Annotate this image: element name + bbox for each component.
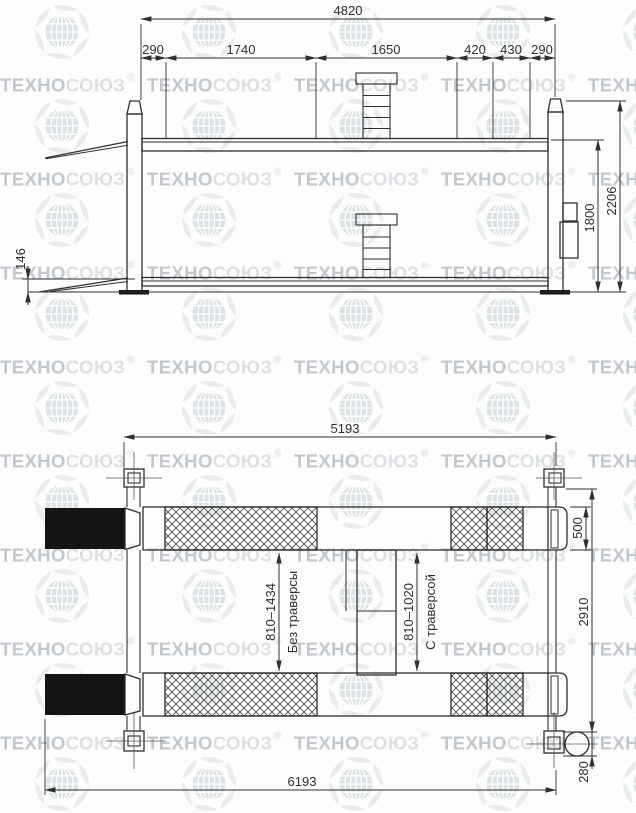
drive-on-ramp [45, 508, 125, 549]
plan-post-rear-right [526, 712, 598, 768]
runway-lowered [39, 278, 548, 293]
approach-ramp-lowered [39, 278, 128, 292]
elevation-view: 4820 290 1740 1650 420 430 290 [13, 3, 626, 305]
plan-post-front-left [106, 452, 162, 500]
plan-dim-overall-length: 6193 [45, 719, 556, 795]
runway-raised [45, 139, 548, 159]
lift-drawing: 4820 290 1740 1650 420 430 290 [0, 0, 636, 813]
dim-label-seg-1: 1740 [227, 42, 256, 57]
plan-dim-runway-width: 500 [570, 507, 591, 550]
traverse-beam [346, 550, 396, 675]
tread-plate [165, 673, 317, 716]
dim-label-overall-length: 6193 [288, 774, 317, 789]
dim-label-range-traverse: 810–1020 [401, 583, 416, 641]
drive-on-ramp [45, 674, 125, 715]
dim-label-seg-3: 420 [464, 42, 486, 57]
dim-label-frame-width: 2910 [576, 598, 591, 627]
plan-post-front-right [536, 452, 582, 500]
ramp-hinge [125, 674, 140, 715]
tread-plate [487, 673, 523, 716]
tread-plate [165, 507, 317, 550]
jack-stand-raised [356, 73, 397, 139]
jack-stand-lowered [356, 214, 397, 278]
dim-label-seg-5: 290 [531, 42, 553, 57]
elevation-dim-chain: 290 1740 1650 420 430 290 [141, 42, 555, 138]
drawing-sheet: ТЕХНОСОЮЗ ® 4820 [0, 0, 636, 813]
plan-dim-range-traverse: 810–1020 С траверсой [401, 553, 438, 671]
plan-runway-front [45, 507, 567, 550]
dim-note-traverse: С траверсой [423, 574, 438, 650]
right-post [540, 99, 578, 295]
tread-plate [487, 507, 523, 550]
dim-label-frame-length: 5193 [331, 421, 360, 436]
dim-label-seg-2: 1650 [372, 42, 401, 57]
plan-view: 5193 [45, 421, 598, 795]
plan-runway-rear [45, 673, 567, 716]
dim-label-motor: 280 [576, 761, 591, 783]
dim-label-total-length: 4820 [334, 3, 363, 18]
elevation-dim-total-height: 2206 [566, 101, 626, 292]
elevation-dim-lowered-height: 146 [13, 248, 135, 305]
tread-plate [451, 507, 487, 550]
dim-label-seg-0: 290 [142, 42, 164, 57]
approach-ramp-raised [45, 142, 128, 159]
plan-dim-motor: 280 [563, 719, 597, 783]
dim-label-seg-4: 430 [500, 42, 522, 57]
plan-dim-range-no-traverse: 810–1434 Без траверсы [263, 553, 300, 671]
dim-label-lift-height: 1800 [582, 204, 597, 233]
dim-label-runway-width: 500 [570, 517, 585, 539]
plan-dim-frame-length: 5193 [124, 421, 556, 468]
tread-plate [451, 673, 487, 716]
dim-note-no-traverse: Без траверсы [285, 571, 300, 654]
left-post [119, 101, 149, 295]
dim-label-lowered-height: 146 [13, 248, 28, 270]
dim-label-total-height: 2206 [604, 187, 619, 216]
plan-post-rear-left [106, 713, 166, 769]
ramp-hinge [125, 508, 140, 550]
control-box-upper [563, 203, 577, 221]
dim-label-range-no-traverse: 810–1434 [263, 583, 278, 641]
